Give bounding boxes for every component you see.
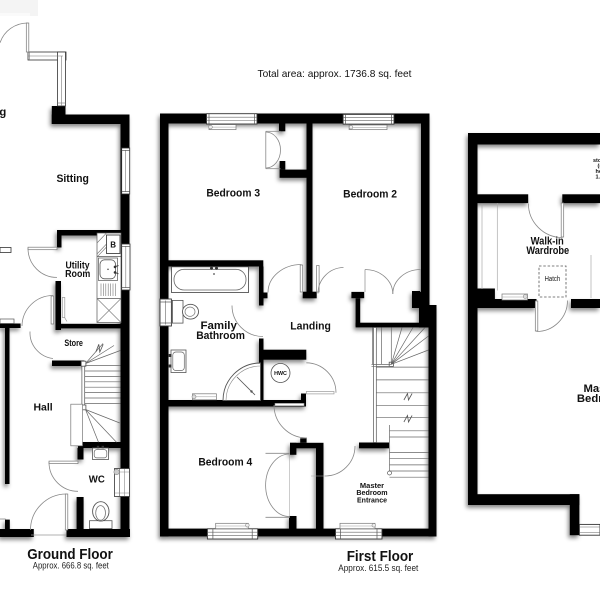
svg-text:ng: ng [0, 107, 6, 119]
svg-text:Landing: Landing [290, 320, 331, 332]
svg-text:1.2: 1.2 [596, 175, 600, 181]
svg-text:Store: Store [64, 338, 83, 348]
svg-text:Total area: approx. 1736.8 sq.: Total area: approx. 1736.8 sq. feet [258, 69, 412, 80]
svg-text:Hatch: Hatch [545, 276, 561, 283]
svg-text:Master: Master [360, 483, 384, 490]
svg-text:Sitting: Sitting [56, 173, 89, 185]
svg-text:WC: WC [89, 474, 106, 485]
svg-text:Hall: Hall [34, 403, 53, 414]
svg-text:B: B [110, 241, 116, 250]
svg-text:Wardrobe: Wardrobe [526, 245, 569, 257]
svg-text:Approx. 666.8 sq. feet: Approx. 666.8 sq. feet [33, 560, 109, 570]
svg-text:Approx. 615.5 sq. feet: Approx. 615.5 sq. feet [338, 563, 418, 573]
svg-text:Bedroom: Bedroom [356, 490, 387, 497]
svg-text:Bedroom: Bedroom [577, 393, 600, 405]
svg-text:HWC: HWC [274, 371, 287, 377]
svg-text:Bedroom 3: Bedroom 3 [206, 188, 260, 200]
svg-text:Entrance: Entrance [357, 497, 387, 504]
svg-text:Room: Room [65, 269, 90, 280]
svg-text:Bedroom 2: Bedroom 2 [343, 188, 397, 200]
svg-text:Bathroom: Bathroom [196, 330, 245, 342]
svg-text:Bedroom 4: Bedroom 4 [198, 456, 253, 468]
